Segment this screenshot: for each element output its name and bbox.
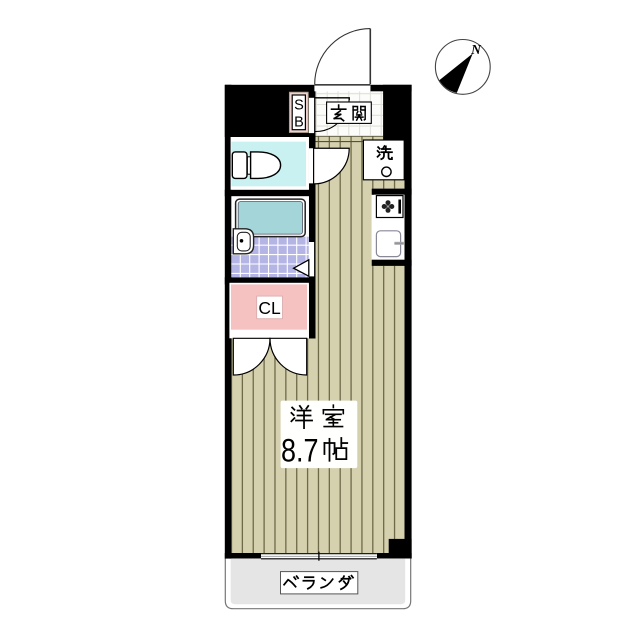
svg-text:S: S [294,98,304,114]
svg-text:B: B [294,115,304,131]
svg-text:N: N [470,42,482,57]
svg-text:CL: CL [258,298,281,318]
svg-text:8.7: 8.7 [281,433,319,469]
